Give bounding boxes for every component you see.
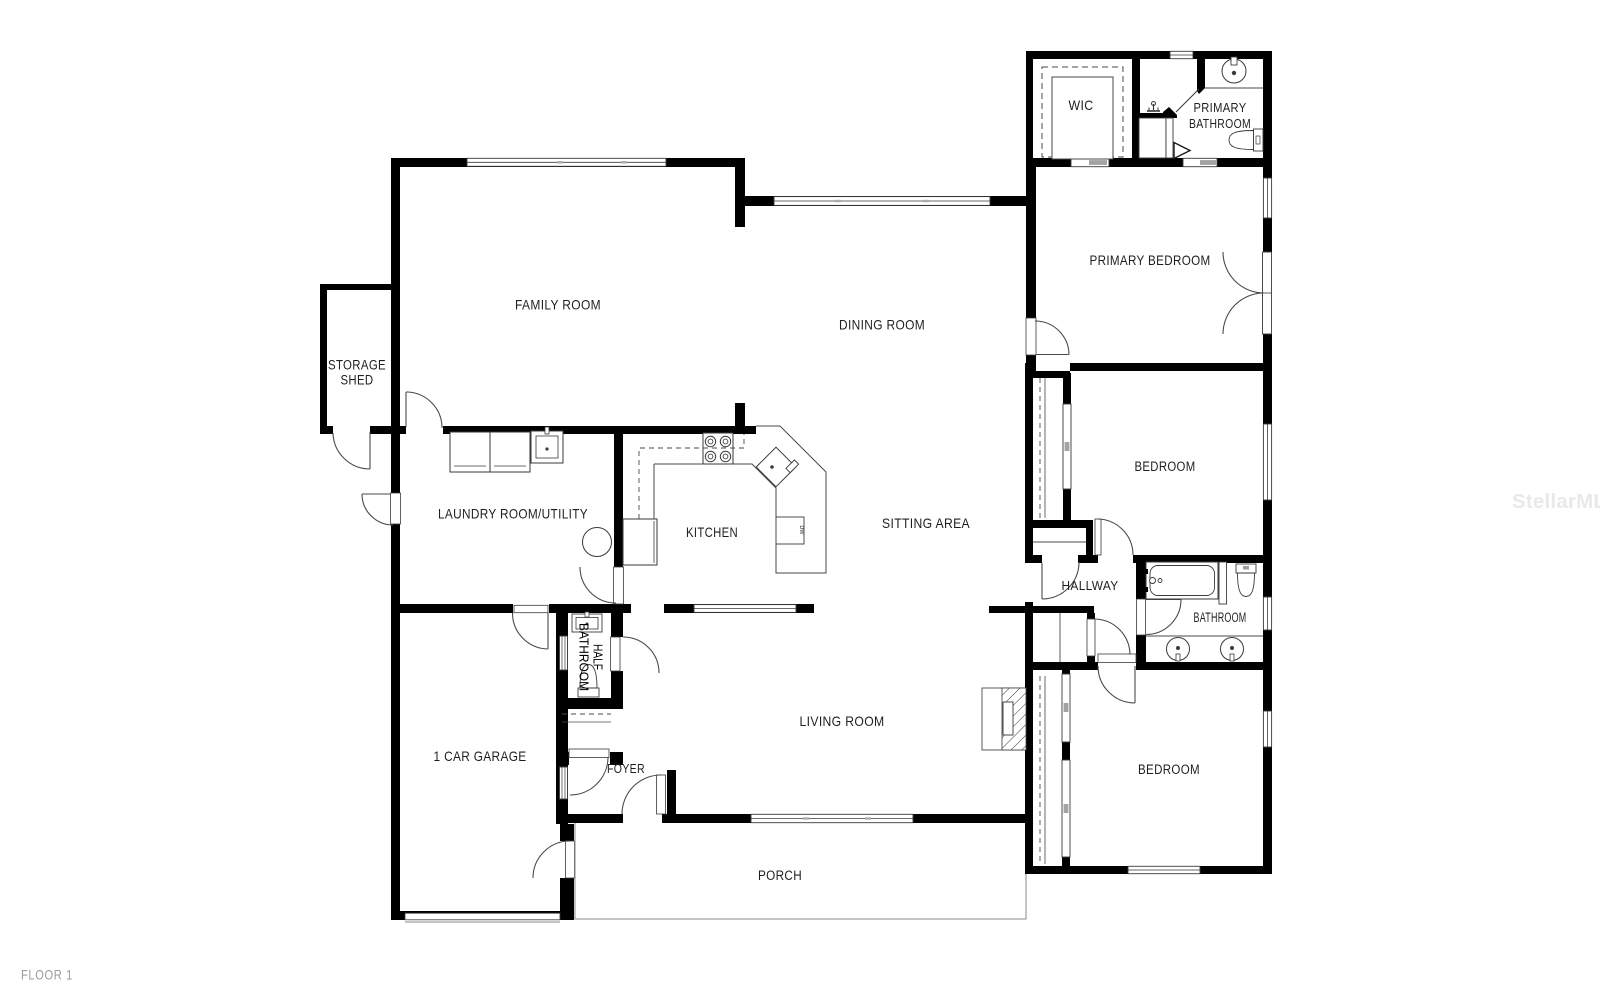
svg-text:1 CAR GARAGE: 1 CAR GARAGE — [434, 748, 527, 764]
svg-text:PRIMARY: PRIMARY — [1194, 100, 1247, 115]
svg-text:StellarMLS: StellarMLS — [1512, 490, 1600, 513]
svg-text:SHED: SHED — [341, 373, 374, 388]
svg-text:BATHROOM: BATHROOM — [1194, 610, 1247, 625]
svg-text:BEDROOM: BEDROOM — [1138, 762, 1200, 777]
svg-text:DW: DW — [798, 525, 804, 535]
svg-text:SITTING AREA: SITTING AREA — [882, 515, 970, 531]
svg-text:HALF: HALF — [591, 644, 605, 670]
svg-text:FAMILY ROOM: FAMILY ROOM — [515, 297, 601, 313]
svg-text:KITCHEN: KITCHEN — [686, 524, 738, 540]
svg-text:DINING ROOM: DINING ROOM — [839, 317, 925, 333]
svg-text:LIVING ROOM: LIVING ROOM — [800, 713, 885, 729]
svg-text:STORAGE: STORAGE — [328, 358, 386, 373]
svg-text:BEDROOM: BEDROOM — [1135, 459, 1196, 474]
svg-text:PRIMARY BEDROOM: PRIMARY BEDROOM — [1090, 252, 1211, 268]
svg-text:FOYER: FOYER — [607, 761, 645, 776]
svg-text:PORCH: PORCH — [758, 868, 802, 883]
svg-text:LAUNDRY ROOM/UTILITY: LAUNDRY ROOM/UTILITY — [438, 506, 588, 522]
svg-text:HALLWAY: HALLWAY — [1062, 578, 1119, 593]
svg-text:BATHROOM: BATHROOM — [577, 623, 591, 691]
svg-text:BATHROOM: BATHROOM — [1189, 116, 1251, 131]
svg-text:WIC: WIC — [1069, 97, 1094, 113]
svg-text:FLOOR 1: FLOOR 1 — [21, 967, 73, 983]
